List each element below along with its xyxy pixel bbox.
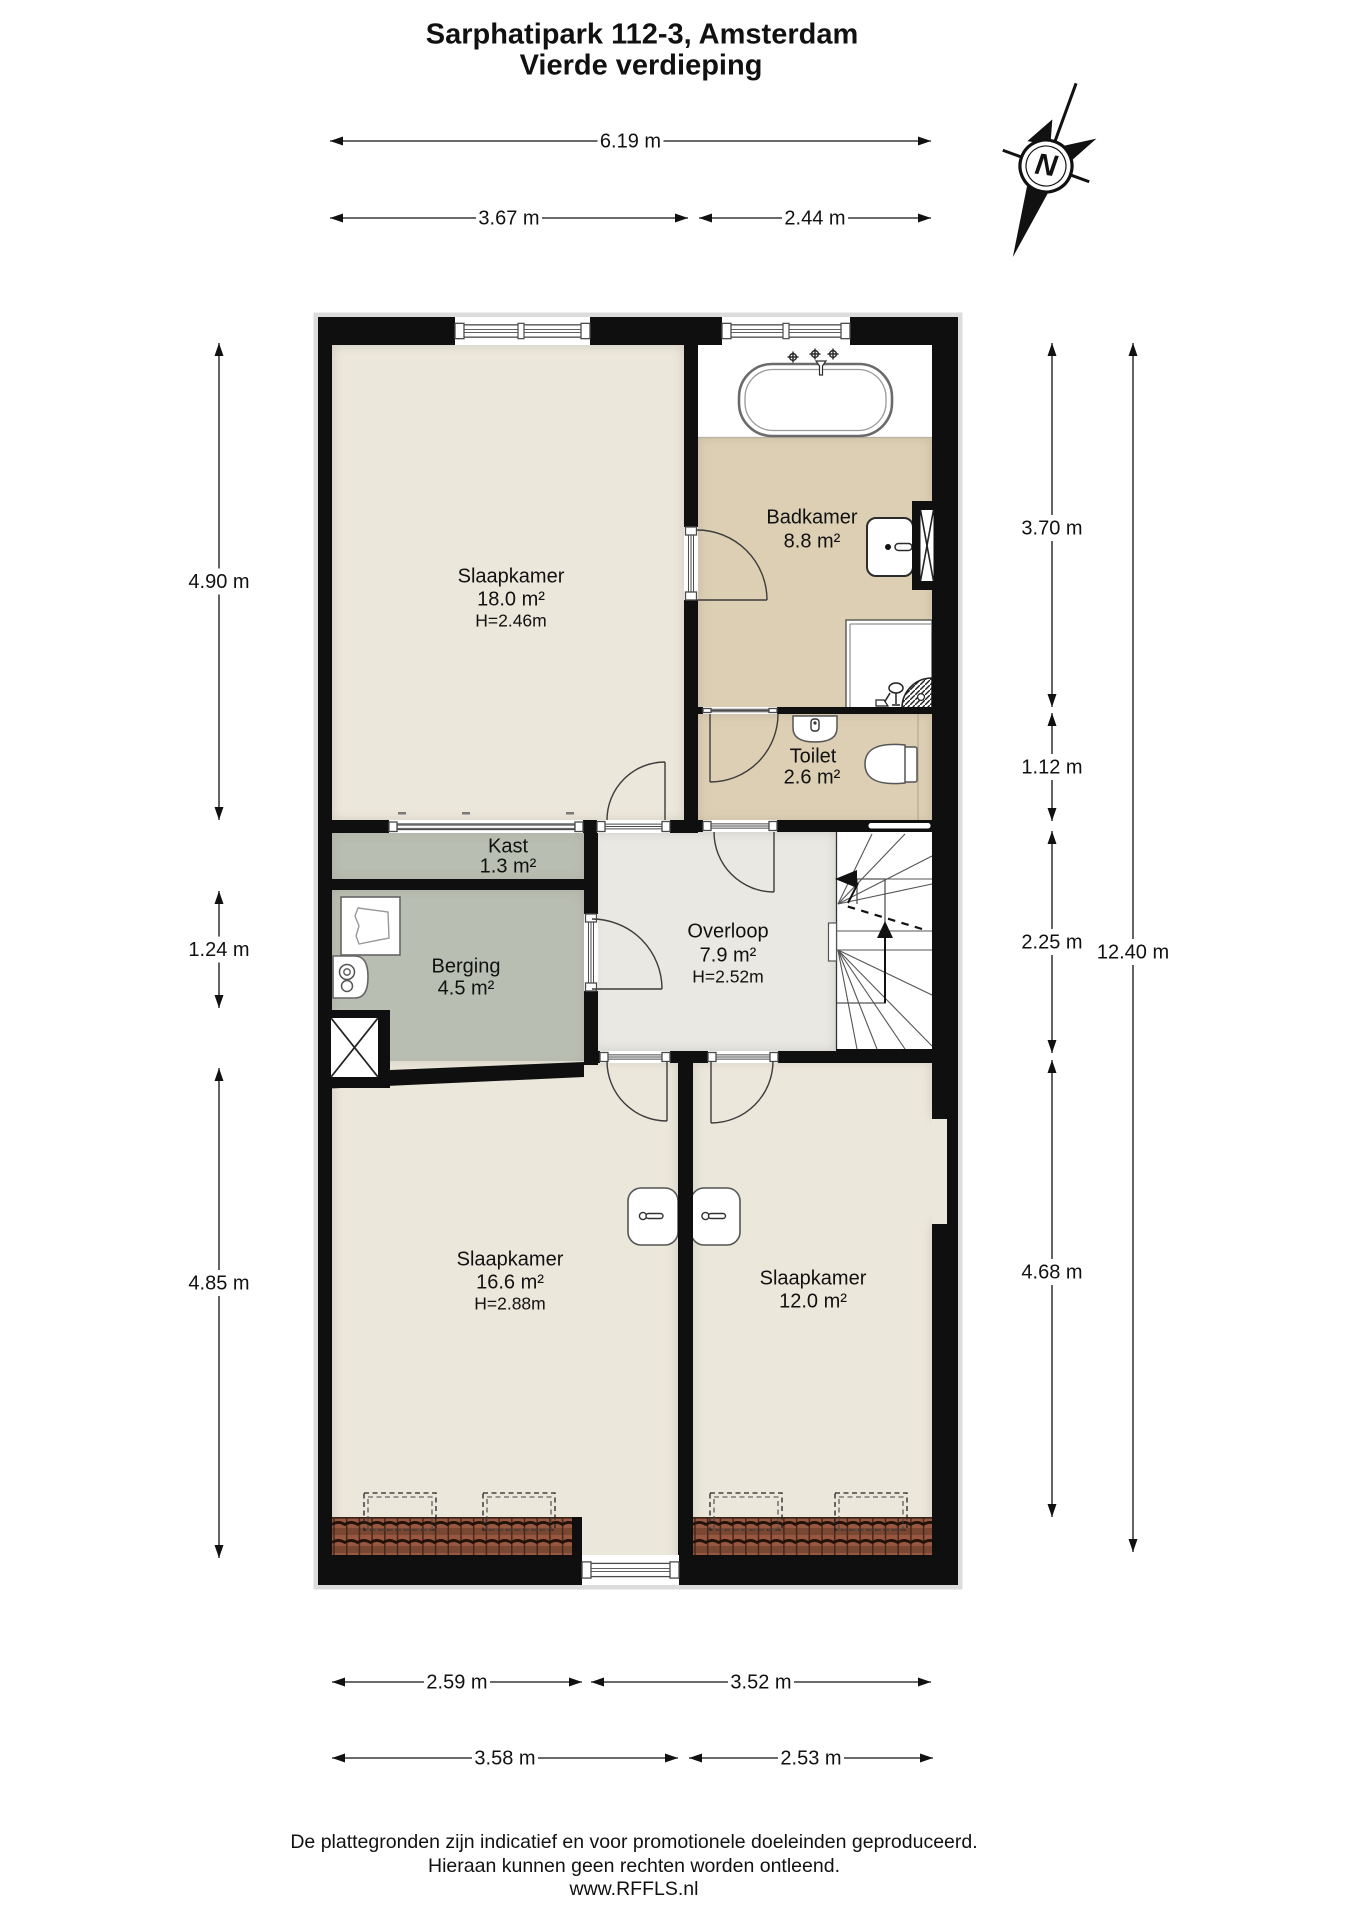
svg-text:H=2.52m: H=2.52m [692, 967, 764, 987]
svg-text:Kast: Kast [488, 835, 528, 857]
svg-text:2.59 m: 2.59 m [426, 1671, 487, 1693]
svg-text:3.58 m: 3.58 m [474, 1747, 535, 1769]
svg-text:1.3 m²: 1.3 m² [480, 855, 537, 877]
svg-text:16.6 m²: 16.6 m² [476, 1271, 544, 1293]
svg-text:4.5 m²: 4.5 m² [438, 977, 495, 999]
svg-text:Slaapkamer: Slaapkamer [458, 565, 565, 587]
svg-text:12.0 m²: 12.0 m² [779, 1290, 847, 1312]
svg-text:4.85 m: 4.85 m [188, 1272, 249, 1294]
svg-text:H=2.88m: H=2.88m [474, 1294, 546, 1314]
svg-text:3.70 m: 3.70 m [1021, 517, 1082, 539]
svg-text:Toilet: Toilet [790, 745, 837, 767]
svg-text:Badkamer: Badkamer [766, 506, 857, 528]
svg-text:De plattegronden zijn indicati: De plattegronden zijn indicatief en voor… [290, 1831, 977, 1853]
svg-text:2.53 m: 2.53 m [780, 1747, 841, 1769]
svg-text:1.24 m: 1.24 m [188, 939, 249, 961]
svg-text:6.19 m: 6.19 m [600, 130, 661, 152]
svg-text:2.6 m²: 2.6 m² [784, 766, 841, 788]
svg-text:Overloop: Overloop [687, 920, 768, 942]
svg-text:3.67 m: 3.67 m [478, 207, 539, 229]
svg-text:Slaapkamer: Slaapkamer [457, 1248, 564, 1270]
svg-text:18.0 m²: 18.0 m² [477, 588, 545, 610]
svg-text:12.40 m: 12.40 m [1097, 941, 1169, 963]
svg-text:4.68 m: 4.68 m [1021, 1261, 1082, 1283]
svg-text:2.44 m: 2.44 m [784, 207, 845, 229]
svg-text:www.RFFLS.nl: www.RFFLS.nl [569, 1878, 699, 1900]
svg-text:7.9 m²: 7.9 m² [700, 944, 757, 966]
svg-text:3.52 m: 3.52 m [730, 1671, 791, 1693]
svg-text:Hieraan kunnen geen rechten wo: Hieraan kunnen geen rechten worden ontle… [428, 1855, 840, 1877]
svg-text:1.12 m: 1.12 m [1021, 756, 1082, 778]
svg-text:H=2.46m: H=2.46m [475, 611, 547, 631]
svg-text:Sarphatipark 112-3, Amsterdam: Sarphatipark 112-3, Amsterdam [426, 19, 859, 51]
svg-text:2.25 m: 2.25 m [1021, 931, 1082, 953]
svg-text:8.8 m²: 8.8 m² [784, 530, 841, 552]
svg-text:Slaapkamer: Slaapkamer [760, 1267, 867, 1289]
svg-text:Berging: Berging [432, 955, 501, 977]
svg-text:Vierde verdieping: Vierde verdieping [520, 50, 763, 82]
svg-text:4.90 m: 4.90 m [188, 571, 249, 593]
